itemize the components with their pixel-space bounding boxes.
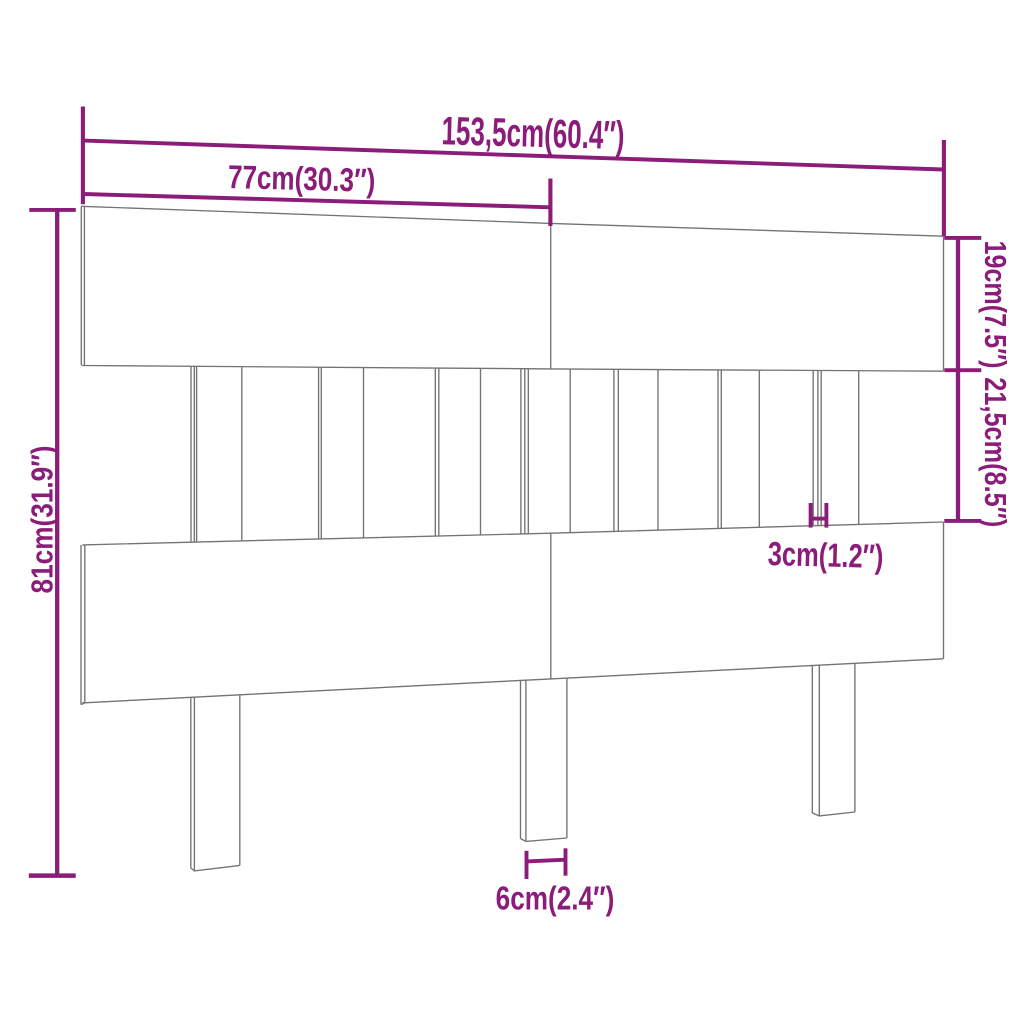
svg-text:81cm(31.9″): 81cm(31.9″) <box>25 446 59 594</box>
svg-text:19cm(7.5″): 19cm(7.5″) <box>978 240 1013 368</box>
svg-text:6cm(2.4″): 6cm(2.4″) <box>496 880 615 917</box>
svg-text:21,5cm(8.5″): 21,5cm(8.5″) <box>978 377 1013 527</box>
svg-text:153,5cm(60.4″): 153,5cm(60.4″) <box>441 109 625 158</box>
svg-text:77cm(30.3″): 77cm(30.3″) <box>227 158 375 199</box>
svg-text:3cm(1.2″): 3cm(1.2″) <box>767 536 884 576</box>
